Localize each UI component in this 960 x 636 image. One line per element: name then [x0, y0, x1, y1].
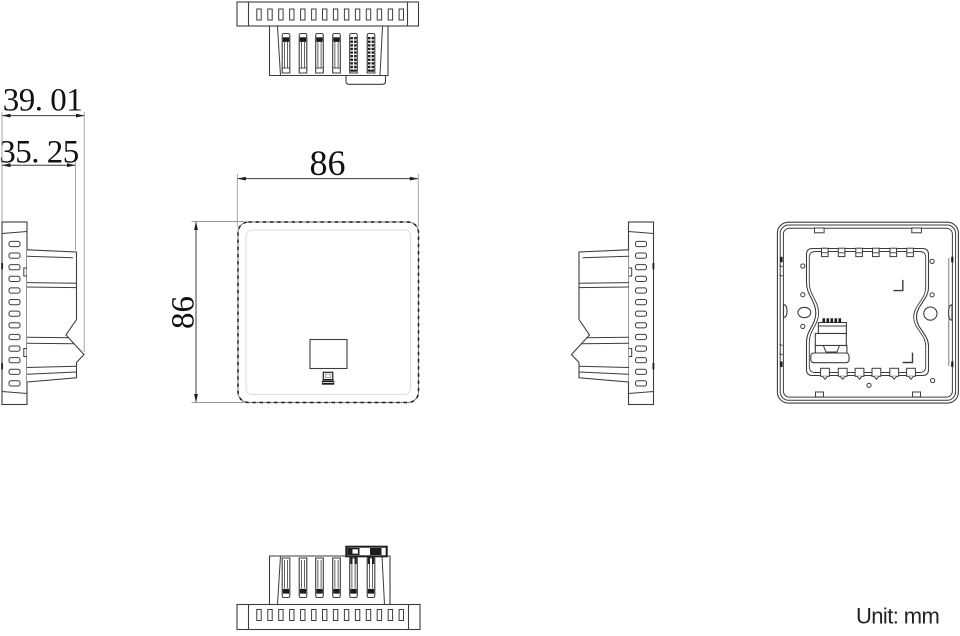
svg-text:39. 01: 39. 01 — [3, 83, 83, 119]
svg-text:Unit: mm: Unit: mm — [856, 604, 939, 629]
svg-text:86: 86 — [310, 143, 346, 183]
